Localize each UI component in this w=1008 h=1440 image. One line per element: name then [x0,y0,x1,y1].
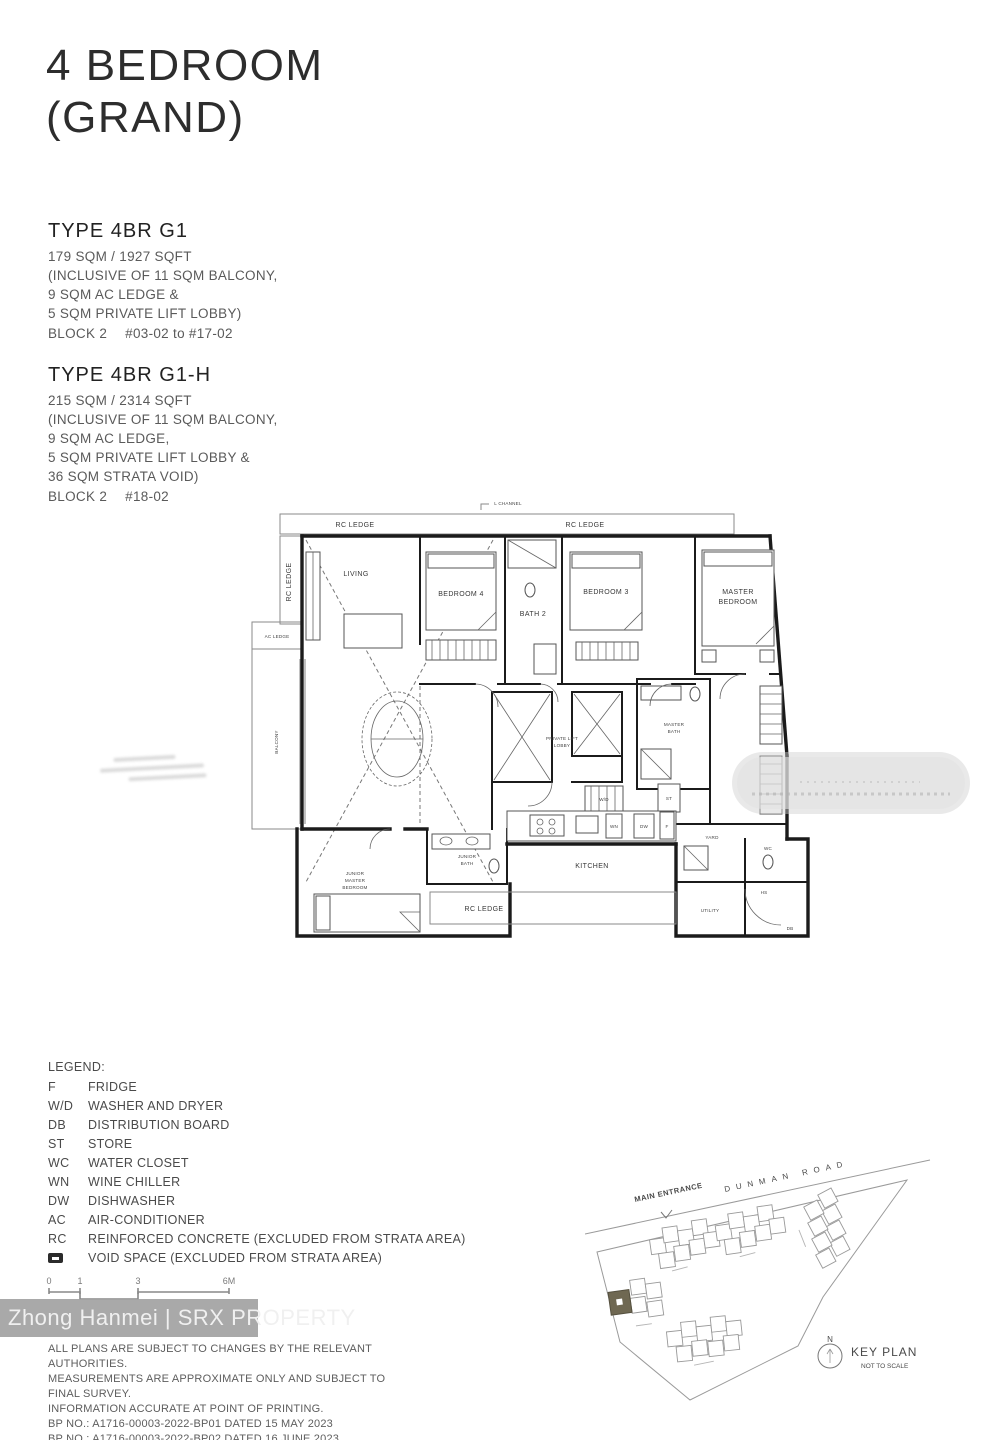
disclaimer-line1: ALL PLANS ARE SUBJECT TO CHANGES BY THE … [48,1342,408,1372]
type-g1h-area: 215 SQM / 2314 SQFT [48,391,348,410]
room-label-l-channel: L CHANNEL [494,501,522,506]
room-label-junior-1: JUNIOR [346,871,365,876]
legend-key: WN [48,1173,88,1192]
room-label-jbath-1: JUNIOR [458,854,477,859]
room-label-rc-ledge-top-left: RC LEDGE [336,522,375,529]
legend-desc: STORE [88,1135,132,1154]
room-label-jbath-2: BATH [461,861,474,866]
legend-desc: WASHER AND DRYER [88,1097,223,1116]
room-label-lift-lobby-2: LOBBY [554,743,570,748]
room-label-yard: YARD [705,835,719,840]
floor-plan: L CHANNEL RC LEDGE RC LEDGE RC LEDGE RC … [240,494,984,944]
legend-title: LEGEND: [48,1058,466,1077]
room-label-utility: UTILITY [701,908,720,913]
title-line1: 4 BEDROOM [46,40,324,92]
scale-bar-line [49,1288,229,1299]
entrance-arrow [661,1210,672,1218]
north-label: N [827,1335,833,1344]
type-g1-name: TYPE 4BR G1 [48,222,348,241]
type-g1h-name: TYPE 4BR G1-H [48,366,348,385]
title-line2: (GRAND) [46,92,324,144]
disclaimer-line2: MEASUREMENTS ARE APPROXIMATE ONLY AND SU… [48,1372,408,1402]
room-label-master-1: MASTER [722,589,754,596]
legend-desc: DISHWASHER [88,1192,175,1211]
scale-tick-1: 1 [77,1276,82,1286]
legend-row-void: VOID SPACE (EXCLUDED FROM STRATA AREA) [48,1249,466,1268]
legend-row: DWDISHWASHER [48,1192,466,1211]
room-label-rc-ledge-left: RC LEDGE [286,563,293,602]
keyplan-title: KEY PLAN [851,1345,917,1359]
room-label-bedroom4: BEDROOM 4 [438,591,484,598]
appliance-label-fridge: F [665,824,668,829]
room-label-kitchen: KITCHEN [575,863,609,870]
room-label-junior-2: MASTER [345,878,366,883]
main-entrance-label: MAIN ENTRANCE [634,1181,704,1204]
type-g1-area: 179 SQM / 1927 SQFT [48,247,348,266]
legend-row: FFRIDGE [48,1078,466,1097]
watermark-band: Zhong Hanmei | SRX PROPERTY [0,1299,258,1337]
legend-row: W/DWASHER AND DRYER [48,1097,466,1116]
type-g1-block-line: BLOCK 2#03-02 to #17-02 [48,324,348,343]
type-block-g1: TYPE 4BR G1 179 SQM / 1927 SQFT (INCLUSI… [48,222,348,343]
legend-key: F [48,1078,88,1097]
appliance-label-dishwasher: DW [640,824,649,829]
disclaimer-line5: BP NO.: A1716-00003-2022-BP02 DATED 16 J… [48,1432,408,1440]
type-g1-block: BLOCK 2 [48,326,107,341]
type-block-g1h: TYPE 4BR G1-H 215 SQM / 2314 SQFT (INCLU… [48,366,348,506]
type-g1h-incl3: 5 SQM PRIVATE LIFT LOBBY & [48,448,348,467]
type-g1h-incl2: 9 SQM AC LEDGE, [48,429,348,448]
room-label-living: LIVING [343,571,368,578]
legend-desc: DISTRIBUTION BOARD [88,1116,230,1135]
room-label-junior-3: BEDROOM [342,885,367,890]
room-label-rc-ledge-top-right: RC LEDGE [566,522,605,529]
legend-key: DB [48,1116,88,1135]
legend-desc: WATER CLOSET [88,1154,189,1173]
type-g1-incl2: 9 SQM AC LEDGE & [48,285,348,304]
appliance-label-store: ST [666,796,672,801]
watermark-text: Zhong Hanmei | SRX PROPERTY [0,1305,356,1331]
room-label-bath2: BATH 2 [520,611,546,618]
keyplan-subtitle: NOT TO SCALE [861,1363,909,1370]
type-g1h-incl1: (INCLUSIVE OF 11 SQM BALCONY, [48,410,348,429]
scale-tick-3: 3 [135,1276,140,1286]
type-g1h-incl4: 36 SQM STRATA VOID) [48,467,348,486]
legend-desc: FRIDGE [88,1078,137,1097]
scale-tick-0: 0 [46,1276,51,1286]
disclaimer-line4: BP NO.: A1716-00003-2022-BP01 DATED 15 M… [48,1417,408,1432]
legend-key: DW [48,1192,88,1211]
highlighted-block [608,1290,632,1316]
room-label-balcony: BALCONY [274,730,279,753]
floorplan-page: 4 BEDROOM (GRAND) TYPE 4BR G1 179 SQM / … [0,0,1008,1440]
room-label-bedroom3: BEDROOM 3 [583,589,629,596]
room-label-masterbath-1: MASTER [664,722,685,727]
legend-row: STSTORE [48,1135,466,1154]
legend: LEGEND: FFRIDGE W/DWASHER AND DRYER DBDI… [48,1058,466,1268]
legend-row: DBDISTRIBUTION BOARD [48,1116,466,1135]
room-label-masterbath-2: BATH [668,729,681,734]
legend-row: WNWINE CHILLER [48,1173,466,1192]
legend-row: ACAIR-CONDITIONER [48,1211,466,1230]
scale-tick-6m: 6M [223,1276,236,1286]
room-label-rc-ledge-bottom: RC LEDGE [465,906,504,913]
north-compass-icon [818,1344,842,1368]
type-g1-incl1: (INCLUSIVE OF 11 SQM BALCONY, [48,266,348,285]
appliance-label-winechiller: WN [610,824,618,829]
void-space-icon [48,1249,88,1268]
appliance-label-db: DB [787,926,794,931]
blurred-strip [732,752,970,814]
room-label-master-2: BEDROOM [719,599,758,606]
page-title: 4 BEDROOM (GRAND) [46,40,324,144]
legend-row: RCREINFORCED CONCRETE (EXCLUDED FROM STR… [48,1230,466,1249]
type-g1-incl3: 5 SQM PRIVATE LIFT LOBBY) [48,304,348,323]
disclaimer: ALL PLANS ARE SUBJECT TO CHANGES BY THE … [48,1342,408,1440]
legend-desc: AIR-CONDITIONER [88,1211,205,1230]
room-label-hs: HS [761,890,768,895]
l-channel-mark [481,504,489,510]
door-arcs [370,674,781,925]
legend-desc: VOID SPACE (EXCLUDED FROM STRATA AREA) [88,1249,382,1268]
legend-key: W/D [48,1097,88,1116]
type-g1-units: #03-02 to #17-02 [125,326,233,341]
legend-key: WC [48,1154,88,1173]
disclaimer-line3: INFORMATION ACCURATE AT POINT OF PRINTIN… [48,1402,408,1417]
legend-desc: REINFORCED CONCRETE (EXCLUDED FROM STRAT… [88,1230,466,1249]
room-label-wc: WC [764,846,773,851]
type-g1h-block: BLOCK 2 [48,489,107,504]
legend-key: ST [48,1135,88,1154]
legend-desc: WINE CHILLER [88,1173,181,1192]
appliance-label-washerdryer: W/D [599,797,609,802]
type-g1h-units: #18-02 [125,489,169,504]
room-label-lift-lobby-1: PRIVATE LIFT [546,736,578,741]
room-label-ac-ledge: AC LEDGE [265,634,290,639]
legend-key: AC [48,1211,88,1230]
faded-neighbour-text [99,753,206,783]
legend-key: RC [48,1230,88,1249]
legend-row: WCWATER CLOSET [48,1154,466,1173]
key-plan: MAIN ENTRANCE DUNMAN ROAD [585,1150,1008,1418]
